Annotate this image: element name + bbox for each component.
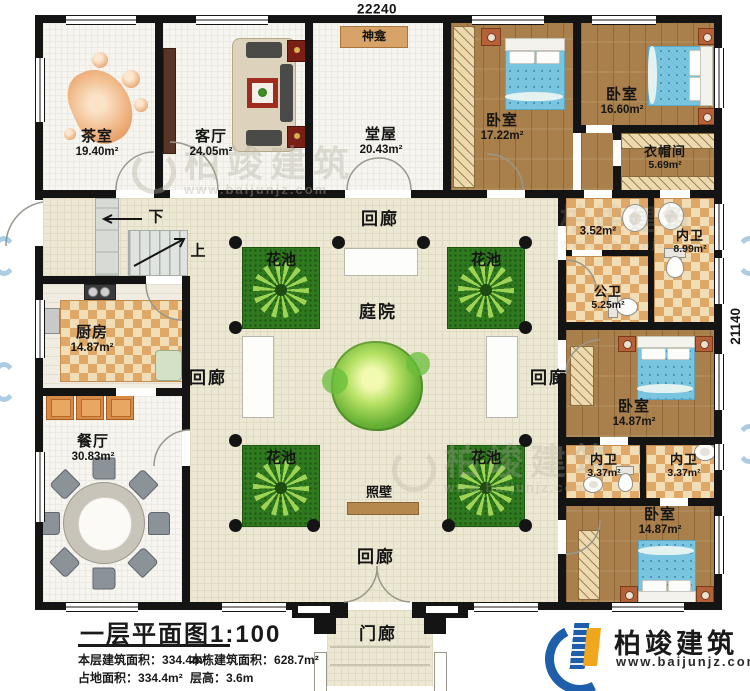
- dimension-top: 22240: [357, 1, 397, 16]
- door-opening: [613, 140, 621, 166]
- screen-wall: [347, 502, 419, 515]
- height-label: 层高：: [190, 671, 226, 685]
- courtyard-bench-left: [242, 336, 274, 418]
- total-area-row: 本栋建筑面积：628.7m²: [190, 651, 319, 668]
- door-opening: [660, 190, 690, 198]
- nightstand: [618, 336, 636, 352]
- room-label-ensuite-left: 内卫 3.37m²: [587, 453, 620, 479]
- wall: [443, 15, 451, 198]
- corridor-label-bottom: 回廊: [357, 547, 395, 566]
- wardrobe: [570, 346, 594, 406]
- room-name: 餐厅: [72, 434, 115, 451]
- window: [472, 15, 544, 25]
- land-area-label: 占地面积：: [78, 671, 138, 685]
- room-label-bedroom-topright: 卧室 16.60m²: [601, 87, 644, 117]
- room-area: 17.22m²: [481, 130, 524, 143]
- room-label-bath-352: 3.52m²: [580, 226, 616, 239]
- room-area: 19.40m²: [76, 146, 119, 159]
- window: [714, 204, 724, 250]
- column: [442, 519, 455, 532]
- room-area: 24.05m²: [190, 146, 233, 159]
- window: [222, 602, 286, 612]
- window: [612, 602, 684, 612]
- dining-chair: [148, 512, 170, 535]
- bathroom-sink: [622, 204, 648, 232]
- column: [519, 236, 532, 249]
- room-area: 16.60m²: [601, 104, 644, 117]
- room-area: 30.83m²: [72, 451, 115, 464]
- room-label-public-bath: 公卫 5.25m²: [591, 285, 624, 311]
- window: [474, 602, 538, 612]
- main-hall-floor: [313, 23, 443, 190]
- door-opening: [584, 190, 612, 198]
- bed-headboard: [505, 38, 565, 51]
- tea-art-dot: [92, 52, 108, 68]
- room-area: 5.25m²: [591, 299, 624, 311]
- column: [229, 236, 242, 249]
- wall: [35, 388, 182, 396]
- column: [307, 519, 320, 532]
- tea-art-dot: [134, 98, 148, 112]
- room-name: 卧室: [481, 113, 524, 130]
- sofa-cushion: [280, 64, 293, 122]
- side-table-knob: [294, 133, 300, 139]
- total-area-label: 本栋建筑面积：: [190, 653, 274, 667]
- door-opening: [660, 498, 688, 506]
- stove-burner: [100, 287, 110, 297]
- column: [229, 519, 242, 532]
- room-label-living: 客厅 24.05m²: [190, 129, 233, 159]
- room-area: 8.99m²: [673, 243, 706, 255]
- height-row: 层高：3.6m: [190, 669, 253, 686]
- door-opening: [170, 190, 218, 198]
- room-label-tea: 茶室 19.40m²: [76, 129, 119, 159]
- tea-art-dot: [64, 128, 76, 140]
- porch-column: [314, 618, 336, 634]
- pillow: [641, 348, 666, 360]
- bed-fold: [648, 46, 657, 104]
- window: [714, 516, 724, 574]
- dining-stool: [76, 394, 104, 420]
- room-name: 客厅: [190, 129, 233, 146]
- sofa-cushion: [246, 130, 282, 146]
- room-name: 卧室: [639, 507, 682, 524]
- dining-stool: [106, 394, 134, 420]
- door-opening: [600, 437, 628, 445]
- room-area: 14.87m²: [613, 416, 656, 429]
- tree-foliage: [322, 368, 348, 394]
- height-value: 3.6m: [226, 671, 253, 685]
- bed-fold: [637, 384, 693, 393]
- wall: [155, 15, 163, 198]
- room-area: 3.37m²: [587, 467, 620, 479]
- flower-bed-label: 花池: [266, 451, 296, 468]
- room-area: 14.87m²: [639, 524, 682, 537]
- wall: [640, 445, 646, 498]
- door-opening: [116, 388, 156, 396]
- window: [714, 444, 724, 470]
- window: [592, 15, 656, 25]
- wall: [648, 198, 654, 322]
- porch-column: [424, 618, 446, 634]
- room-label-bedroom-bottom: 卧室 14.87m²: [639, 507, 682, 537]
- nightstand: [620, 586, 638, 603]
- wall: [573, 15, 581, 133]
- stair-down-strip: [95, 198, 119, 276]
- side-entry-opening: [35, 200, 43, 246]
- wardrobe: [578, 530, 600, 600]
- land-area-value: 334.4m²: [138, 671, 183, 685]
- kitchen-sink: [155, 350, 182, 381]
- wall: [566, 437, 722, 445]
- room-name: 内卫: [587, 453, 620, 468]
- room-area: 20.43m²: [360, 144, 403, 157]
- corridor-label-top: 回廊: [361, 209, 399, 228]
- door-opening: [182, 430, 190, 466]
- floor-area-row: 本层建筑面积：334.4m²: [78, 651, 207, 668]
- stair-up-label: 上: [190, 244, 205, 261]
- flower-bed-label: 花池: [471, 451, 501, 468]
- screen-wall-label: 照壁: [366, 486, 392, 501]
- pillow: [642, 580, 667, 592]
- door-opening: [572, 250, 602, 256]
- room-area: 3.52m²: [580, 226, 616, 239]
- room-area: 3.37m²: [667, 467, 700, 479]
- room-label-dining: 餐厅 30.83m²: [72, 434, 115, 464]
- nightstand: [696, 586, 714, 603]
- palm-plant-icon: [253, 262, 309, 318]
- porch-pier: [434, 652, 447, 691]
- stove-burner: [88, 287, 98, 297]
- room-name: 公卫: [591, 285, 624, 300]
- porch-step: [330, 646, 430, 648]
- company-website: www.baijunjz.com: [616, 654, 750, 669]
- stair-up-flight: [128, 230, 188, 276]
- room-label-cloakroom: 衣帽间 5.69m²: [644, 145, 686, 171]
- nightstand: [695, 336, 713, 352]
- corridor-label-right: 回廊: [530, 368, 568, 387]
- total-area-value: 628.7m²: [274, 653, 319, 667]
- room-label-kitchen: 厨房 14.87m²: [71, 325, 114, 355]
- room-name: 茶室: [76, 129, 119, 146]
- door-opening: [586, 125, 612, 133]
- pillow: [668, 580, 691, 592]
- room-name: 内卫: [667, 453, 700, 468]
- column: [229, 434, 242, 447]
- window: [66, 15, 136, 25]
- dimension-right: 21140: [728, 308, 743, 345]
- bed-fold: [505, 92, 563, 101]
- rug-plant-icon: [258, 88, 267, 97]
- palm-plant-icon: [458, 460, 514, 516]
- watermark-fragment: [736, 424, 750, 464]
- room-name: 卧室: [601, 87, 644, 104]
- bathroom-sink: [658, 202, 684, 230]
- palm-plant-icon: [458, 262, 514, 318]
- toilet: [666, 256, 684, 278]
- wall: [305, 15, 313, 198]
- room-name: 衣帽间: [644, 145, 686, 160]
- flower-bed-label: 花池: [471, 253, 501, 270]
- window: [714, 258, 724, 304]
- porch-wall-window: [426, 606, 458, 613]
- door-opening: [345, 190, 411, 198]
- tree-foliage: [406, 352, 430, 376]
- column: [519, 519, 532, 532]
- pillow: [509, 51, 535, 64]
- column: [332, 236, 345, 249]
- porch-label: 门廊: [359, 624, 397, 643]
- wardrobe: [453, 26, 475, 188]
- corridor-label-left: 回廊: [189, 368, 227, 387]
- window: [714, 354, 724, 410]
- shrine-cabinet: 神龛: [340, 26, 408, 48]
- column: [519, 321, 532, 334]
- door-opening: [146, 276, 182, 284]
- room-label-hall: 堂屋 20.43m²: [360, 127, 403, 157]
- side-table-knob: [294, 47, 300, 53]
- room-name: 内卫: [673, 229, 706, 244]
- main-entry-opening: [348, 602, 412, 610]
- door-opening: [558, 226, 566, 260]
- pillow: [689, 77, 701, 101]
- courtyard-bench-right: [486, 336, 518, 418]
- room-label-ensuite-large: 内卫 8.99m²: [673, 229, 706, 255]
- column: [417, 236, 430, 249]
- window: [35, 300, 45, 358]
- porch-floor: [327, 610, 433, 686]
- window: [35, 58, 45, 122]
- title-underline: [78, 644, 230, 647]
- window: [66, 602, 138, 612]
- door-opening: [558, 520, 566, 554]
- window: [714, 48, 724, 108]
- door-opening: [116, 190, 154, 198]
- pillow: [689, 50, 701, 76]
- watermark-fragment: [0, 362, 17, 402]
- courtyard-label: 庭院: [359, 302, 397, 321]
- company-logo-icon: [545, 616, 609, 680]
- dining-chair: [93, 568, 116, 590]
- fridge: [44, 308, 60, 334]
- window: [196, 15, 268, 25]
- nightstand: [481, 28, 501, 46]
- room-name: 厨房: [71, 325, 114, 342]
- room-name: 卧室: [613, 399, 656, 416]
- tea-art-dot: [122, 70, 140, 88]
- door-opening: [487, 190, 525, 198]
- room-area: 14.87m²: [71, 342, 114, 355]
- porch-wall-window: [298, 606, 330, 613]
- wall: [566, 322, 722, 330]
- room-label-ensuite-right: 内卫 3.37m²: [667, 453, 700, 479]
- dining-stool: [46, 394, 74, 420]
- bed-headboard: [700, 46, 713, 106]
- room-area: 5.69m²: [644, 159, 686, 171]
- flower-bed-label: 花池: [266, 253, 296, 270]
- floor-plan: 神龛: [0, 0, 750, 691]
- room-name: 堂屋: [360, 127, 403, 144]
- tv-cabinet: [163, 48, 176, 154]
- floor-area-label: 本层建筑面积：: [78, 653, 162, 667]
- wall: [566, 498, 722, 506]
- room-label-bedroom-top: 卧室 17.22m²: [481, 113, 524, 143]
- watermark-fragment: [0, 236, 17, 276]
- column: [229, 321, 242, 334]
- window: [35, 452, 45, 522]
- bed-fold: [638, 546, 694, 555]
- stair-down-label: 下: [148, 210, 163, 227]
- column: [519, 434, 532, 447]
- watermark-fragment: [736, 236, 750, 276]
- pillow: [667, 348, 690, 360]
- bed-headboard: [637, 336, 695, 348]
- shrine-label: 神龛: [362, 30, 386, 43]
- room-label-bedroom-mid: 卧室 14.87m²: [613, 399, 656, 429]
- land-area-row: 占地面积：334.4m²: [78, 669, 183, 686]
- sofa-cushion: [246, 42, 282, 58]
- pillow: [536, 51, 560, 64]
- porch-step: [330, 664, 430, 666]
- palm-plant-icon: [253, 460, 309, 516]
- dining-table: [63, 482, 145, 564]
- courtyard-bench-top: [344, 248, 418, 276]
